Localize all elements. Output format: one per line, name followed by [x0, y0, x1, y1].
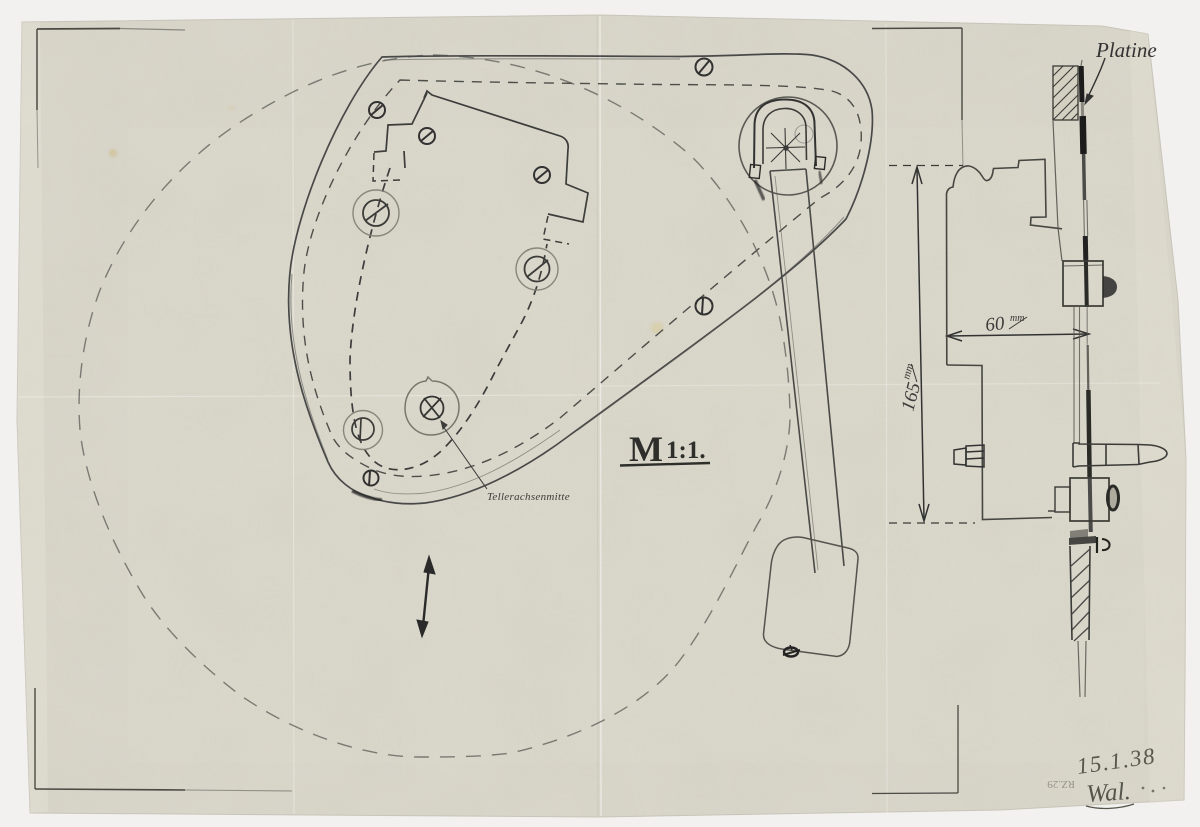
svg-text:mm: mm: [1010, 313, 1024, 324]
svg-text:RZ.29: RZ.29: [1047, 778, 1075, 790]
svg-text:Tellerachsenmitte: Tellerachsenmitte: [487, 491, 570, 503]
svg-text:M: M: [629, 429, 663, 469]
svg-text:60: 60: [984, 313, 1006, 336]
svg-text:1:1.: 1:1.: [666, 437, 706, 464]
svg-text:Wal.: Wal.: [1086, 778, 1132, 808]
